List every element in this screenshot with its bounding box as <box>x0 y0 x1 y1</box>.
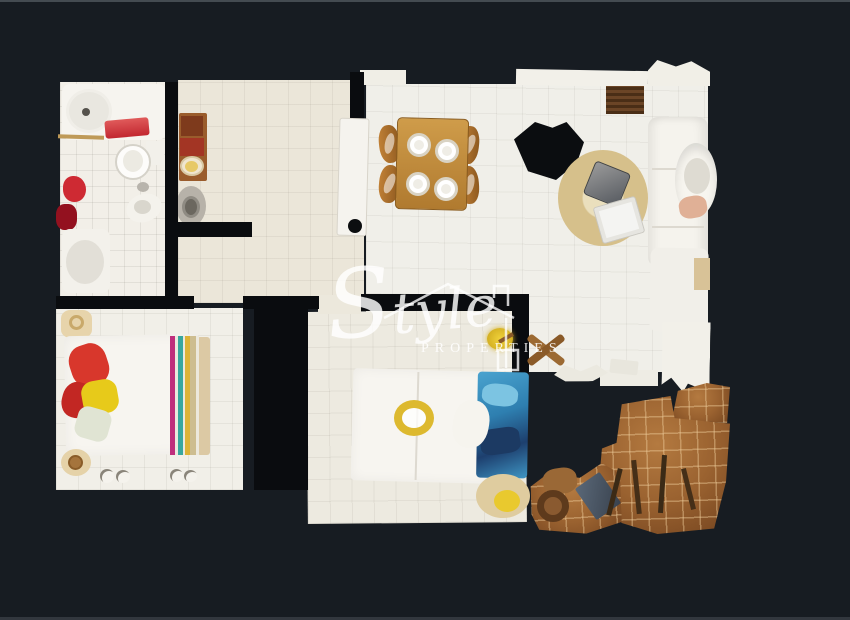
top-hairline <box>0 0 850 2</box>
kitchen-counter-left <box>360 70 406 85</box>
toilet-seat <box>123 150 143 172</box>
dark-red-towel <box>56 204 77 230</box>
watermark-initial: S <box>322 247 396 362</box>
sofa-seam <box>652 226 704 228</box>
console-item-dark <box>181 116 203 136</box>
yellow-wreath <box>394 400 434 436</box>
slipper <box>116 470 130 483</box>
floorplan-canvas: Style PROPERTIES <box>0 0 850 620</box>
plate <box>406 172 430 196</box>
watermark-script: Style <box>323 255 499 346</box>
door-handle <box>348 219 362 233</box>
bedside-knob <box>69 315 84 330</box>
armchair-seat <box>684 158 710 194</box>
round-stool-center <box>68 455 83 470</box>
wall-bath-bedroom <box>56 296 194 309</box>
decor-bowl-glow <box>185 161 198 172</box>
white-scan-fragment <box>609 359 638 376</box>
rainbow-striped-blanket <box>170 336 199 455</box>
plate <box>435 139 459 163</box>
dining-table <box>395 117 469 211</box>
rug-yellow-item <box>494 490 520 512</box>
floor-drain <box>137 182 149 192</box>
kitchen-grill <box>606 86 644 114</box>
slipper <box>184 470 197 482</box>
round-pan-center <box>182 196 200 218</box>
shower-basin <box>66 240 104 284</box>
plate <box>407 133 431 157</box>
kitchen-counter <box>516 69 648 87</box>
watermark-rest: tyle <box>390 274 500 348</box>
bathtub-drain <box>82 108 90 116</box>
bidet-basin <box>134 200 151 214</box>
curtain-fragment <box>661 322 710 393</box>
slipper <box>170 469 183 482</box>
console-item-red <box>180 138 204 156</box>
red-bath-mat <box>63 176 86 202</box>
wall-void-between-bedrooms <box>254 301 308 490</box>
wall-hall-living <box>350 72 364 121</box>
watermark-subtext: PROPERTIES <box>421 341 563 357</box>
beige-nook <box>694 258 710 290</box>
red-towel <box>104 117 149 139</box>
kitchen-counter-corner <box>648 60 710 86</box>
wall-hall-stub <box>165 222 252 237</box>
wooden-chair-ring <box>537 490 569 522</box>
wall-bathroom-hall <box>165 82 178 308</box>
plate <box>434 177 458 201</box>
slipper <box>100 469 114 483</box>
